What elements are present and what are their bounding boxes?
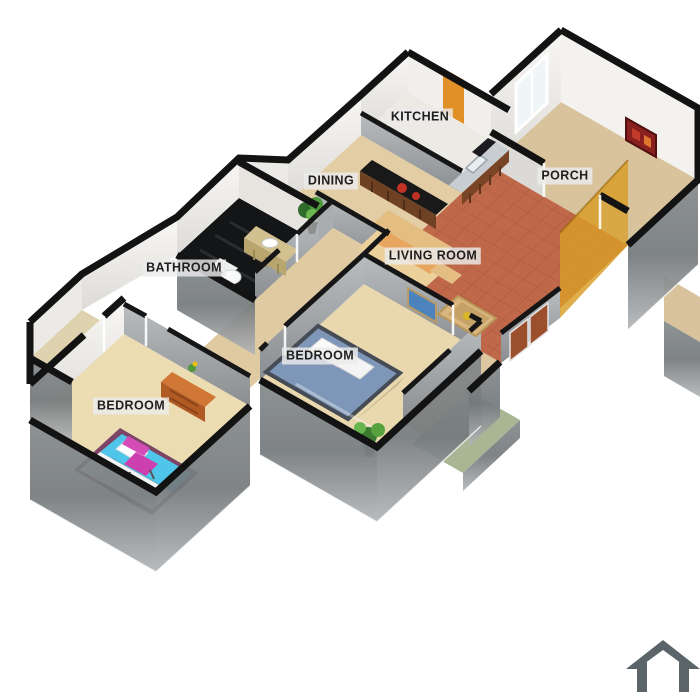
house-logo-icon bbox=[626, 640, 700, 692]
house-left-leg bbox=[637, 662, 647, 692]
sideboard-hob-ring-2 bbox=[412, 192, 420, 200]
room-label-kitchen: KITCHEN bbox=[387, 109, 453, 126]
plant-leaf bbox=[371, 423, 385, 437]
vanity-sink bbox=[262, 239, 278, 248]
house-right-leg bbox=[679, 662, 689, 692]
dresser-flower-bloom bbox=[193, 362, 198, 367]
room-label-porch: PORCH bbox=[537, 168, 592, 185]
sideboard-hob-ring bbox=[397, 183, 407, 193]
room-label-dining: DINING bbox=[304, 173, 358, 190]
floor-plan-render: KITCHEN DINING PORCH BATHROOM LIVING ROO… bbox=[0, 0, 700, 700]
room-label-bedroom-main: BEDROOM bbox=[282, 348, 358, 365]
room-label-living-room: LIVING ROOM bbox=[385, 248, 481, 265]
room-label-bedroom-second: BEDROOM bbox=[93, 398, 169, 415]
room-label-bathroom: BATHROOM bbox=[142, 260, 226, 277]
